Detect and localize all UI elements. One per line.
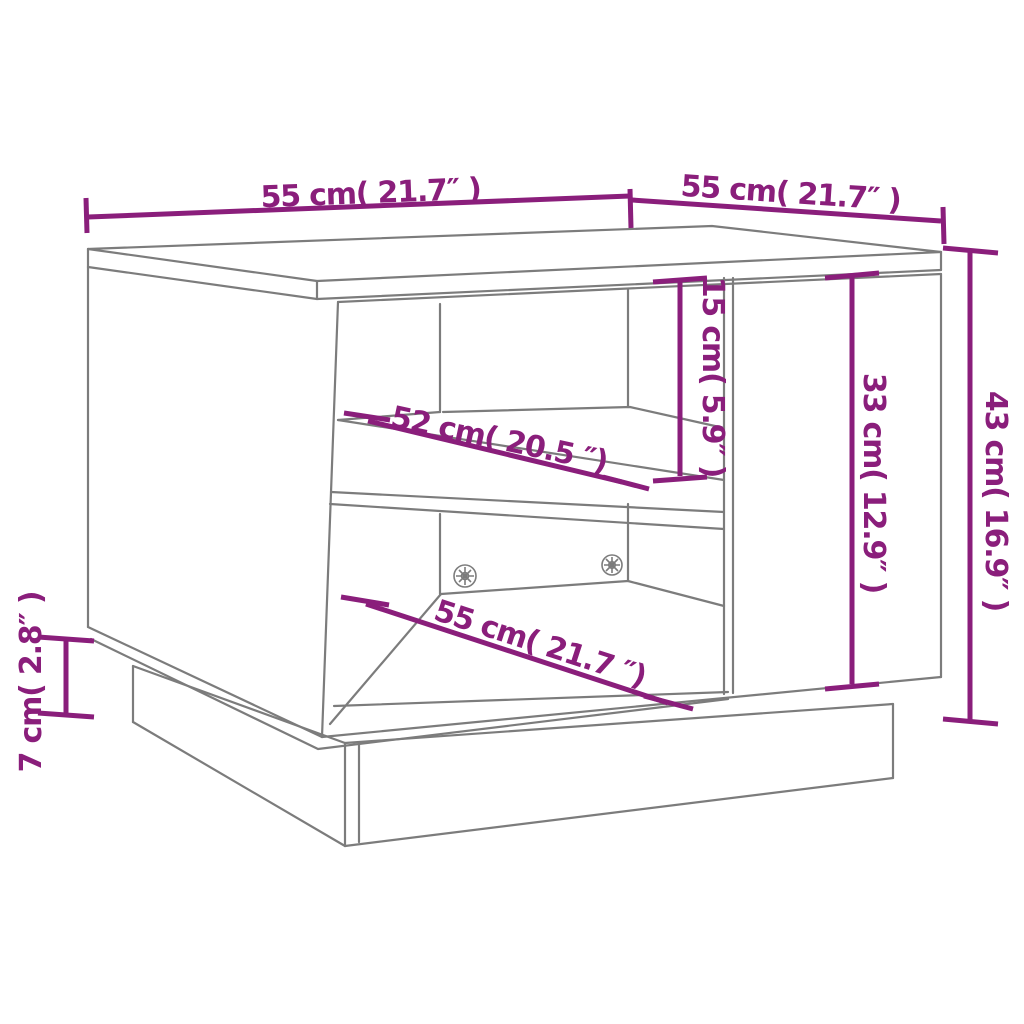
- carcass: [88, 267, 941, 749]
- tabletop: [88, 226, 941, 299]
- dim-label-tabletop-depth-right: 55 cm( 21.7″ ): [680, 169, 902, 219]
- dim-label-upper-compartment-height: 15 cm( 5.9″ ): [695, 277, 730, 478]
- dimension-diagram: 55 cm( 21.7″ ) 55 cm( 21.7″ ) 15 cm( 5.9…: [0, 0, 1024, 1024]
- coffee-table-drawing: 55 cm( 21.7″ ) 55 cm( 21.7″ ) 15 cm( 5.9…: [0, 0, 1024, 1024]
- cam-screw-icon: [602, 555, 622, 575]
- dim-label-base-plinth-height: 7 cm( 2.8″ ): [14, 592, 49, 773]
- dim-label-door-panel-height: 33 cm( 12.9″ ): [856, 373, 891, 593]
- dim-label-bottom-compartment-width: 55 cm( 21.7 ″): [430, 593, 650, 694]
- table-outline: [88, 226, 941, 846]
- cam-screw-icon: [454, 565, 476, 587]
- dim-label-overall-height: 43 cm( 16.9″ ): [978, 391, 1013, 611]
- dim-label-shelf-depth: 52 cm( 20.5 ″): [388, 400, 611, 480]
- dim-label-tabletop-width-left: 55 cm( 21.7″ ): [260, 172, 481, 215]
